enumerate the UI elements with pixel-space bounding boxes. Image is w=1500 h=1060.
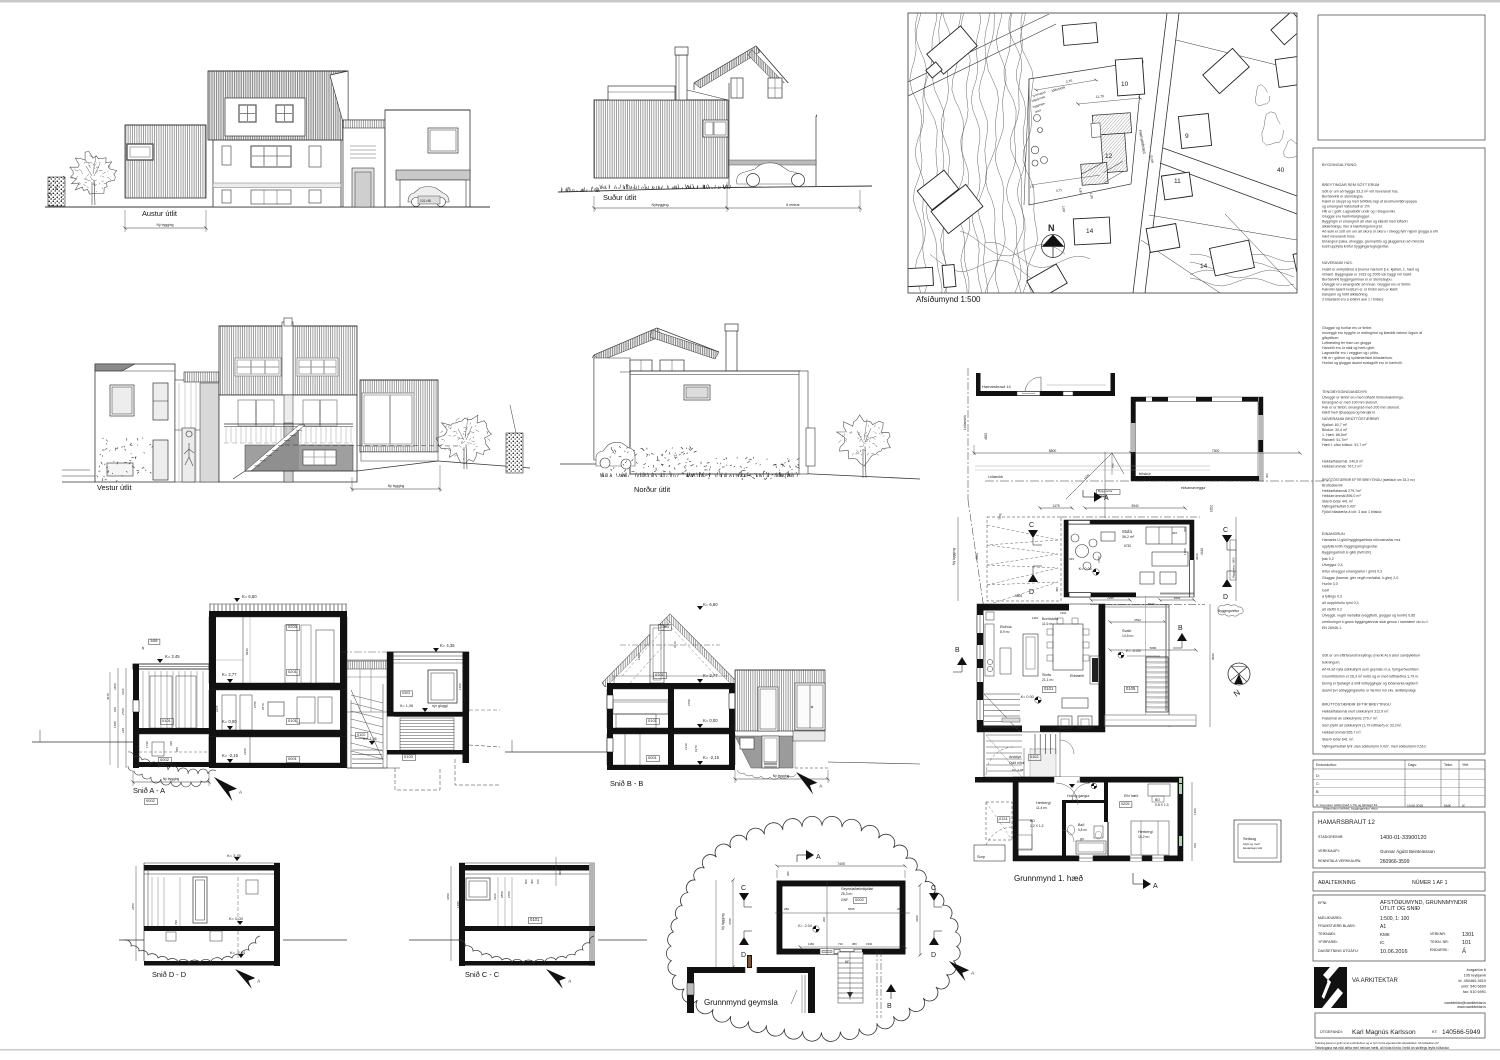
svg-text:Herbergi: Herbergi xyxy=(1138,830,1153,834)
svg-text:K= 6,60: K= 6,60 xyxy=(703,602,718,607)
svg-text:Norður útlit: Norður útlit xyxy=(634,485,670,494)
svg-text:EN 26946-1.: EN 26946-1. xyxy=(1322,626,1342,630)
svg-text:bárujárni og höfð álklæðning.: bárujárni og höfð álklæðning. xyxy=(1322,292,1368,297)
svg-text:0103: 0103 xyxy=(404,754,414,759)
svg-text:Teikningana má ekki afrita með: Teikningana má ekki afrita með neinum hæ… xyxy=(1315,1045,1450,1050)
svg-text:750: 750 xyxy=(1111,463,1115,468)
svg-text:A: A xyxy=(816,854,821,861)
svg-text:14: 14 xyxy=(1086,228,1094,235)
svg-text:Nýtingarhlutfall fyrir utan sö: Nýtingarhlutfall fyrir utan sökkulrými 0… xyxy=(1322,744,1427,749)
svg-text:3450: 3450 xyxy=(446,893,450,900)
svg-text:YFIRFARIÐ:: YFIRFARIÐ: xyxy=(1318,940,1338,944)
svg-text:Lóðamörk: Lóðamörk xyxy=(962,415,967,430)
svg-text:5943: 5943 xyxy=(1148,602,1155,606)
svg-text:A1: A1 xyxy=(1380,924,1386,930)
svg-text:Herbergi: Herbergi xyxy=(1036,801,1051,805)
svg-text:Lagnaleiðir eru í veggjum og í: Lagnaleiðir eru í veggjum og í plötu. xyxy=(1322,350,1379,355)
svg-text:340: 340 xyxy=(1172,531,1177,535)
svg-text:gifsplötum.: gifsplötum. xyxy=(1322,336,1339,340)
svg-text:BRÚTTÓSTÆRÐIR EFTIR BREYTINGU: BRÚTTÓSTÆRÐIR EFTIR BREYTINGU (stækkun u… xyxy=(1322,477,1415,482)
svg-text:0001: 0001 xyxy=(648,755,658,760)
svg-text:3 bílastæði eru á lóðinni auk: 3 bílastæði eru á lóðinni auk 1 í bílskú… xyxy=(1322,297,1384,302)
svg-text:GNF: GNF xyxy=(841,898,848,902)
svg-text:NF: NF xyxy=(845,960,849,964)
svg-text:K= 0,00: K= 0,00 xyxy=(703,718,718,723)
svg-text:Sorp: Sorp xyxy=(977,855,985,859)
svg-text:K= 0.00: K= 0.00 xyxy=(229,916,244,921)
svg-text:5940: 5940 xyxy=(1131,504,1138,508)
svg-text:15,2 m²: 15,2 m² xyxy=(1138,835,1150,839)
svg-text:Hámarks U-gildi byggingarhluta: Hámarks U-gildi byggingarhluta niðvosina… xyxy=(1322,537,1401,542)
svg-text:fax: 510 6991: fax: 510 6991 xyxy=(1463,990,1486,994)
svg-text:Anddyri: Anddyri xyxy=(1009,755,1021,759)
svg-text:3110: 3110 xyxy=(121,688,125,695)
svg-text:Geymsla/tæknikjallari: Geymsla/tæknikjallari xyxy=(841,887,873,891)
svg-text:14: 14 xyxy=(1200,263,1208,270)
svg-text:Hol og gangur: Hol og gangur xyxy=(1067,794,1090,798)
svg-text:Útveggur 0,4: Útveggur 0,4 xyxy=(1322,562,1343,567)
svg-text:A: A xyxy=(819,783,822,788)
svg-text:Heildarrúmmál 955,7 m³.: Heildarrúmmál 955,7 m³. xyxy=(1322,731,1362,735)
svg-text:A: A xyxy=(1153,883,1158,890)
svg-text:Stofa: Stofa xyxy=(1122,529,1132,534)
svg-text:1480: 1480 xyxy=(456,901,460,908)
svg-text:BREYTINGAR SEM SÓTT ERUM: BREYTINGAR SEM SÓTT ERUM xyxy=(1322,182,1379,187)
svg-text:730: 730 xyxy=(838,942,843,946)
svg-text:280: 280 xyxy=(784,907,789,911)
svg-text:C: C xyxy=(931,885,936,892)
svg-text:1180: 1180 xyxy=(808,942,814,946)
svg-text:9080: 9080 xyxy=(1211,653,1215,660)
svg-text:Snið B - B: Snið B - B xyxy=(610,779,643,788)
svg-text:3760: 3760 xyxy=(1097,556,1101,563)
svg-text:Heildarflatarmál: 240,6 m²: Heildarflatarmál: 240,6 m² xyxy=(1322,460,1364,464)
svg-text:Eldstæði: Eldstæði xyxy=(1070,673,1084,678)
svg-text:9: 9 xyxy=(1185,133,1189,140)
svg-text:2115: 2115 xyxy=(215,705,219,712)
svg-text:NÚMER 1 AF 1: NÚMER 1 AF 1 xyxy=(1412,879,1448,886)
svg-text:7405: 7405 xyxy=(837,862,845,866)
svg-text:0205: 0205 xyxy=(1121,802,1129,806)
svg-text:2780: 2780 xyxy=(507,891,511,898)
svg-text:C: C xyxy=(1223,527,1228,534)
svg-text:úrreikningur k-gross byggingar: úrreikningur k-gross byggingarinnar skai… xyxy=(1322,620,1428,624)
svg-text:B: B xyxy=(1178,625,1183,632)
svg-text:K= 3.45: K= 3.45 xyxy=(227,853,242,858)
svg-text:Heildarrúmmál 896,0 m³: Heildarrúmmál 896,0 m³ xyxy=(1322,494,1361,498)
svg-text:Burðarvirki byggingarinnar e: Burðarvirki byggingarinnar er úr steinst… xyxy=(1322,277,1393,282)
svg-text:B: B xyxy=(887,1003,892,1010)
svg-text:Húsið er einbýlishús á þremur: Húsið er einbýlishús á þremur hæðum þ.e.… xyxy=(1322,267,1419,272)
svg-text:101: 101 xyxy=(1462,940,1471,946)
svg-text:0946: 0946 xyxy=(245,648,249,655)
svg-text:K= 0.00: K= 0.00 xyxy=(1079,567,1092,571)
svg-text:K= 1.05: K= 1.05 xyxy=(1077,780,1090,784)
svg-text:40: 40 xyxy=(1277,167,1285,174)
svg-text:Sótt er um að byggja 33,3 m² v: Sótt er um að byggja 33,3 m² við núveran… xyxy=(1322,189,1399,194)
svg-text:A: A xyxy=(257,978,260,983)
svg-text:DAGSETNING ÚTGÁFU:: DAGSETNING ÚTGÁFU: xyxy=(1318,948,1359,953)
svg-text:1. Hæð: 88,5m²: 1. Hæð: 88,5m² xyxy=(1322,432,1348,437)
svg-text:K= 4,35: K= 4,35 xyxy=(440,643,455,648)
svg-text:Stofa: Stofa xyxy=(1042,673,1052,677)
svg-text:þak 0,2: þak 0,2 xyxy=(1322,557,1334,561)
svg-text:26,3 m²: 26,3 m² xyxy=(841,892,853,896)
svg-text:Hamarsbraut 14: Hamarsbraut 14 xyxy=(982,384,1011,389)
svg-text:A: A xyxy=(239,789,242,794)
svg-text:kt. 450460-3510: kt. 450460-3510 xyxy=(1459,979,1486,983)
svg-text:kosti uppfylla kröfur bygginga: kosti uppfylla kröfur byggingarreglugerð… xyxy=(1322,244,1389,249)
svg-text:bílskúr: bílskúr xyxy=(1139,471,1151,476)
svg-text:0101: 0101 xyxy=(288,718,298,723)
svg-text:Hurðar og gluggar ásamt svalag: Hurðar og gluggar ásamt svalagólfi eru ú… xyxy=(1322,360,1403,365)
svg-text:910: 910 xyxy=(1193,843,1197,848)
svg-text:3110: 3110 xyxy=(493,893,497,900)
svg-text:Bílskúr: 30,4 m²: Bílskúr: 30,4 m² xyxy=(1322,428,1348,432)
svg-text:600: 600 xyxy=(463,698,467,703)
svg-text:Gunnar Ágúst Beinteinsson: Gunnar Ágúst Beinteinsson xyxy=(1380,848,1435,854)
svg-text:Brúttóstærðir: Brúttóstærðir xyxy=(1322,483,1344,488)
svg-text:2850: 2850 xyxy=(500,891,504,898)
svg-text:AÐALTEIKNING: AÐALTEIKNING xyxy=(1318,880,1356,886)
svg-text:VERKKAUPI:: VERKKAUPI: xyxy=(1318,849,1340,853)
svg-text:5080: 5080 xyxy=(1150,646,1157,650)
svg-text:borgartún 6: borgartún 6 xyxy=(1467,968,1486,972)
svg-text:VERKNR:: VERKNR: xyxy=(1430,932,1446,936)
svg-text:6730: 6730 xyxy=(1124,544,1131,548)
svg-text:Grunnflöturinn er 26,3 m² nett: Grunnflöturinn er 26,3 m² nettó og er me… xyxy=(1322,674,1419,679)
svg-text:AFSTÖÐUMYND, GRUNNMYNDIR: AFSTÖÐUMYND, GRUNNMYNDIR xyxy=(1380,899,1467,906)
svg-text:teikningum:: teikningum: xyxy=(1322,661,1340,665)
svg-text:Setlaug: Setlaug xyxy=(1243,837,1256,841)
svg-text:K= -2,15: K= -2,15 xyxy=(222,753,239,758)
svg-text:4570: 4570 xyxy=(106,693,110,700)
svg-text:www.vaarkitektar.is: www.vaarkitektar.is xyxy=(1457,1005,1486,1009)
svg-text:200: 200 xyxy=(822,917,826,922)
svg-text:1475: 1475 xyxy=(1052,504,1059,508)
svg-text:Svalir: Svalir xyxy=(1122,629,1132,633)
svg-text:hæð núverandi húss.: hæð núverandi húss. xyxy=(1322,234,1356,239)
svg-text:K= -0.05: K= -0.05 xyxy=(1126,649,1140,653)
svg-text:300: 300 xyxy=(1265,473,1269,478)
svg-text:2570: 2570 xyxy=(261,703,265,710)
svg-text:2025: 2025 xyxy=(1209,505,1213,512)
svg-text:Grunnmynd geymsla: Grunnmynd geymsla xyxy=(704,998,778,1007)
svg-text:0101: 0101 xyxy=(1044,686,1054,691)
svg-text:C: C xyxy=(741,885,746,892)
svg-text:að óupphituðu rými 0,3: að óupphituðu rými 0,3 xyxy=(1322,600,1359,605)
svg-text:K= 2,77: K= 2,77 xyxy=(703,673,718,678)
svg-text:690: 690 xyxy=(558,870,562,875)
svg-text:BYGGINGALÝSING:: BYGGINGALÝSING: xyxy=(1322,163,1357,167)
svg-text:Austur útlit: Austur útlit xyxy=(142,209,177,218)
svg-text:0124: 0124 xyxy=(999,817,1007,821)
svg-text:læsanlegu loki: læsanlegu loki xyxy=(1243,846,1263,850)
svg-text:að úteftir 0,2: að úteftir 0,2 xyxy=(1322,606,1342,611)
svg-text:Á: Á xyxy=(1462,948,1466,955)
svg-text:Eldhús: Eldhús xyxy=(1000,625,1012,629)
svg-text:Bygg reitur 1800: Bygg reitur 1800 xyxy=(1232,557,1236,578)
svg-text:4490: 4490 xyxy=(915,915,919,922)
svg-text:klætt með tjöupappa og bárujár: klætt með tjöupappa og bárujárni. xyxy=(1322,410,1376,415)
svg-text:K= -1.05: K= -1.05 xyxy=(1012,768,1024,772)
svg-text:VA ARKITEKTAR: VA ARKITEKTAR xyxy=(1352,978,1398,984)
svg-text:0203: 0203 xyxy=(660,624,670,629)
svg-text:0201: 0201 xyxy=(655,672,665,677)
svg-text:Dags:: Dags: xyxy=(1408,763,1417,767)
svg-text:Bað: Bað xyxy=(1078,822,1084,827)
svg-text:STADGREINIR:: STADGREINIR: xyxy=(1318,835,1343,839)
svg-text:ENDURSK:: ENDURSK: xyxy=(1430,948,1449,952)
svg-text:Borðstofa: Borðstofa xyxy=(1042,616,1059,621)
svg-text:101-HB: 101-HB xyxy=(420,199,431,203)
svg-text:C:: C: xyxy=(1316,782,1320,786)
svg-text:Einangrað er með 100 mm steinu: Einangrað er með 100 mm steinull. xyxy=(1322,400,1378,405)
svg-text:Ný bygging: Ný bygging xyxy=(157,223,174,227)
svg-text:Efri hæð: Efri hæð xyxy=(1124,793,1138,798)
svg-text:12: 12 xyxy=(1105,153,1113,160)
svg-text:Heildarflatarmál með sökkulrým: Heildarflatarmál með sökkulrými 312,9 m²… xyxy=(1322,709,1389,714)
svg-text:4780: 4780 xyxy=(728,918,732,925)
svg-text:K= 0,00: K= 0,00 xyxy=(222,719,237,724)
svg-text:Yfirf:: Yfirf: xyxy=(1462,763,1469,767)
svg-text:Innveggir eru byggðir úr málmg: Innveggir eru byggðir úr málmgrind og kl… xyxy=(1322,330,1422,335)
svg-text:á fyllingu 0,3: á fyllingu 0,3 xyxy=(1322,595,1342,599)
svg-text:36,2 m²: 36,2 m² xyxy=(1122,535,1135,539)
svg-text:TENGIBYGGING/ANDDYRI: TENGIBYGGING/ANDDYRI xyxy=(1322,390,1367,394)
svg-text:Snið C - C: Snið C - C xyxy=(465,970,500,979)
svg-text:Sem þýðir að sökkulrými (1,79: Sem þýðir að sökkulrými (1,79 lofthæð) e… xyxy=(1322,723,1402,728)
svg-text:Ný bygging: Ný bygging xyxy=(952,548,956,565)
svg-text:Handrið eru úr stáli og hertu: Handrið eru úr stáli og hertu gleri. xyxy=(1322,345,1375,350)
svg-text:Flatarmál án sökkulrýmis 279,7: Flatarmál án sökkulrýmis 279,7 m². xyxy=(1322,717,1378,721)
svg-text:14,5 m²: 14,5 m² xyxy=(1122,634,1134,638)
svg-text:EFNI:: EFNI: xyxy=(1318,901,1327,905)
svg-text:625: 625 xyxy=(169,741,173,746)
svg-text:2130: 2130 xyxy=(684,743,688,750)
svg-text:400: 400 xyxy=(530,879,534,884)
svg-text:K= 2,77: K= 2,77 xyxy=(222,672,237,677)
svg-text:A: A xyxy=(971,971,974,976)
svg-text:1400: 1400 xyxy=(1183,548,1187,555)
svg-text:Grunnmynd 1. hæð: Grunnmynd 1. hæð xyxy=(1014,874,1083,883)
svg-text:Stærð lóðar 641 m².: Stærð lóðar 641 m². xyxy=(1322,737,1354,742)
svg-text:200: 200 xyxy=(1183,527,1187,532)
svg-text:Ný bygging: Ný bygging xyxy=(773,774,790,778)
svg-text:KENNITALA VERKKAUPA:: KENNITALA VERKKAUPA: xyxy=(1318,859,1361,863)
svg-text:Útveggir eru einangraðir að in: Útveggir eru einangraðir að innan. Glugg… xyxy=(1322,282,1411,287)
svg-text:0001: 0001 xyxy=(288,756,298,761)
svg-text:11,4 m²: 11,4 m² xyxy=(1036,806,1048,810)
svg-text:2150: 2150 xyxy=(243,748,247,755)
svg-text:C: C xyxy=(1029,522,1034,529)
svg-text:KMK: KMK xyxy=(1444,804,1452,808)
svg-text:4820: 4820 xyxy=(984,433,988,440)
svg-text:0201: 0201 xyxy=(288,669,298,674)
svg-text:3693: 3693 xyxy=(1174,596,1181,600)
svg-text:0002: 0002 xyxy=(855,897,865,902)
svg-text:Afsíðumynd 1:500: Afsíðumynd 1:500 xyxy=(916,295,981,304)
svg-text:1500: 1500 xyxy=(866,942,873,946)
svg-text:ÚTGEFANDI:: ÚTGEFANDI: xyxy=(1320,1029,1343,1034)
svg-text:8,9 m²: 8,9 m² xyxy=(1000,630,1010,634)
svg-text:0002: 0002 xyxy=(160,757,170,762)
svg-text:MÆLIKVARÐI:: MÆLIKVARÐI: xyxy=(1318,916,1342,920)
svg-text:48: 48 xyxy=(141,646,145,650)
svg-text:Hiti er í gólfum og syðstnæðsl: Hiti er í gólfum og syðstnæðslei bílastæ… xyxy=(1322,355,1393,360)
svg-text:0101: 0101 xyxy=(162,718,172,723)
svg-text:Lóðamörk: Lóðamörk xyxy=(988,474,1003,479)
svg-text:sími: 540 6690: sími: 540 6690 xyxy=(1461,985,1486,989)
svg-text:D: D xyxy=(931,952,936,959)
svg-text:Loftræsting fer fram um glugga: Loftræsting fer fram um glugga xyxy=(1322,341,1371,345)
svg-text:EINANGRUN: EINANGRUN xyxy=(1322,532,1345,536)
svg-text:B: B xyxy=(955,647,960,654)
svg-text:álklæðningu, litur á klæðningu: álklæðningu, litur á klæðningunni grár. xyxy=(1322,224,1383,229)
svg-text:Ný bygging: Ný bygging xyxy=(721,913,725,930)
svg-text:Hæð f. ofan bílskúr: 51,7 m²: Hæð f. ofan bílskúr: 51,7 m² xyxy=(1322,442,1367,447)
svg-text:Burðarvirki er steinsteypa.: Burðarvirki er steinsteypa. xyxy=(1322,194,1364,199)
svg-text:Vestur útlit: Vestur útlit xyxy=(97,483,132,492)
svg-text:Kjallari: 60,7 m²: Kjallari: 60,7 m² xyxy=(1322,423,1348,427)
svg-text:Suður útlit: Suður útlit xyxy=(603,193,636,202)
svg-text:A: A xyxy=(1104,495,1109,502)
svg-text:0203: 0203 xyxy=(288,624,298,629)
svg-text:nýr gluggi: nýr gluggi xyxy=(432,704,448,708)
svg-text:6605: 6605 xyxy=(848,907,855,911)
svg-text:150: 150 xyxy=(536,879,540,884)
svg-text:2790: 2790 xyxy=(687,699,691,706)
svg-text:IC: IC xyxy=(1380,940,1385,945)
svg-text:7300: 7300 xyxy=(1212,449,1220,453)
svg-text:Þakvirki ásamt kvistum er úr t: Þakvirki ásamt kvistum er úr timbri sem … xyxy=(1322,288,1397,292)
svg-text:0002: 0002 xyxy=(146,798,156,803)
svg-text:1970: 1970 xyxy=(694,745,698,752)
svg-text:1300: 1300 xyxy=(1193,808,1197,815)
svg-text:255: 255 xyxy=(175,747,179,752)
svg-text:K= -1,06: K= -1,06 xyxy=(363,737,377,741)
svg-text:248: 248 xyxy=(121,728,125,733)
svg-text:10.06.2016: 10.06.2016 xyxy=(1380,949,1408,955)
svg-text:Teikning þessi er gefin út af: Teikning þessi er gefin út af undirrituð… xyxy=(1315,1040,1439,1045)
svg-text:1790: 1790 xyxy=(145,741,149,748)
svg-text:1:500, 1: 100: 1:500, 1: 100 xyxy=(1380,916,1409,922)
svg-text:Opið niður: Opið niður xyxy=(1009,760,1026,765)
svg-text:Fjöldi bílastæða á lóð: 3 auk: Fjöldi bílastæða á lóð: 3 auk 1 bílskúr. xyxy=(1322,509,1382,514)
svg-text:Nýbygging: Nýbygging xyxy=(652,203,669,207)
svg-text:Nýtingarhlutfall 0,437: Nýtingarhlutfall 0,437 xyxy=(1322,505,1356,509)
svg-text:1400-01-33900120: 1400-01-33900120 xyxy=(1380,835,1427,841)
svg-text:Stærð lóðar 441 m²: Stærð lóðar 441 m² xyxy=(1322,498,1354,503)
svg-text:ÚTLIT OG SNIÐ: ÚTLIT OG SNIÐ xyxy=(1380,905,1420,912)
svg-text:Rishæð: 51,7m²: Rishæð: 51,7m² xyxy=(1322,437,1348,442)
svg-text:D: D xyxy=(1223,594,1228,601)
svg-text:7301: 7301 xyxy=(1060,611,1067,615)
svg-text:K= 1,06: K= 1,06 xyxy=(400,704,413,708)
svg-text:Hiti er í gólfi. Lagnaleiðir u: Hiti er í gólfi. Lagnaleiðir undir og í … xyxy=(1322,209,1396,214)
svg-text:11,6 m²: 11,6 m² xyxy=(1042,622,1054,626)
svg-text:2700: 2700 xyxy=(121,708,125,715)
svg-text:2266: 2266 xyxy=(1107,596,1114,600)
svg-text:NÚVERANDI BRÚTTÓSTÆRÐIR: NÚVERANDI BRÚTTÓSTÆRÐIR xyxy=(1322,416,1379,421)
svg-text:796: 796 xyxy=(174,920,178,925)
svg-text:910: 910 xyxy=(113,707,117,712)
svg-text:D: D xyxy=(1029,589,1034,596)
svg-text:Gólf: Gólf xyxy=(1322,588,1329,592)
svg-text:K= -2.04: K= -2.04 xyxy=(798,924,812,928)
svg-text:Ný bygging: Ný bygging xyxy=(388,484,405,488)
svg-text:K= 3.45: K= 3.45 xyxy=(165,654,180,659)
svg-text:8800: 8800 xyxy=(1049,449,1057,453)
svg-text:0105: 0105 xyxy=(1126,686,1136,691)
svg-text:Bygg reitur: Bygg reitur xyxy=(1098,489,1113,493)
svg-text:0101: 0101 xyxy=(648,718,658,723)
svg-text:K= -2,15: K= -2,15 xyxy=(703,755,720,760)
svg-text:K= 0.00: K= 0.00 xyxy=(1021,695,1034,699)
svg-text:1880: 1880 xyxy=(637,653,641,660)
svg-text:HAMARSBRAUT 12: HAMARSBRAUT 12 xyxy=(1318,819,1375,826)
svg-text:4920: 4920 xyxy=(975,553,979,560)
svg-text:K= 6,60: K= 6,60 xyxy=(242,594,257,599)
svg-text:eldvarnarveggur: eldvarnarveggur xyxy=(1181,486,1206,490)
svg-text:B:: B: xyxy=(1316,790,1319,794)
svg-text:6,9 m²: 6,9 m² xyxy=(1072,799,1082,803)
svg-text:280: 280 xyxy=(897,907,902,911)
svg-text:Hurðir 3,0: Hurðir 3,0 xyxy=(1322,581,1338,586)
svg-text:lóðamörkum leiðrétt, byggingar: lóðamörkum leiðrétt, byggingareitur rétt… xyxy=(1323,806,1378,811)
svg-text:0,8 X 1,3: 0,8 X 1,3 xyxy=(1155,803,1169,807)
svg-text:21,1 m²: 21,1 m² xyxy=(1042,678,1054,682)
svg-text:380: 380 xyxy=(852,942,857,946)
svg-text:0303: 0303 xyxy=(402,691,410,695)
svg-text:3450: 3450 xyxy=(113,683,117,690)
svg-text:Karl Magnús Karlsson: Karl Magnús Karlsson xyxy=(1352,1029,1416,1036)
svg-text:3450: 3450 xyxy=(131,903,135,910)
svg-text:3020: 3020 xyxy=(1195,553,1199,560)
svg-text:léttur útveggur einangraður í: léttur útveggur einangraður í grind 0,3 xyxy=(1322,569,1382,574)
svg-text:11: 11 xyxy=(1174,178,1181,185)
svg-text:Einangrun þaka, útveggja, grun: Einangrun þaka, útveggja, grunnplötu og … xyxy=(1322,239,1424,244)
svg-text:TEIKN. NR:: TEIKN. NR: xyxy=(1430,940,1449,944)
svg-text:D:: D: xyxy=(1316,774,1320,778)
svg-text:Heildarrúmmál: 767,2 m³: Heildarrúmmál: 767,2 m³ xyxy=(1322,465,1362,469)
svg-text:4440: 4440 xyxy=(1200,548,1204,555)
svg-text:ásamt því aðbyggingareitur er: ásamt því aðbyggingareitur er færður inn… xyxy=(1322,688,1416,693)
svg-text:Þak er úr timbri, einangrað me: Þak er úr timbri, einangrað með 200 mm s… xyxy=(1322,405,1400,410)
svg-text:3616: 3616 xyxy=(673,641,677,648)
svg-text:Teikn:: Teikn: xyxy=(1444,763,1453,767)
svg-text:BRÚTTÓSTÆRÐIR EFTIR BREYTINGU: BRÚTTÓSTÆRÐIR EFTIR BREYTINGU xyxy=(1322,702,1391,707)
svg-text:6 metrar: 6 metrar xyxy=(786,203,800,207)
svg-text:Byggingin er einangruð að utan: Byggingin er einangruð að utan og klædd … xyxy=(1322,219,1408,224)
svg-text:1488: 1488 xyxy=(113,721,117,728)
svg-text:3455: 3455 xyxy=(150,639,158,643)
svg-text:260966-3599: 260966-3599 xyxy=(1380,859,1410,865)
svg-text:Byggingareitur: Byggingareitur xyxy=(1218,609,1240,613)
svg-text:349: 349 xyxy=(1069,557,1074,561)
svg-text:Að auki er sótt um um að skorá: Að auki er sótt um um að skorá úr skeru … xyxy=(1322,229,1438,234)
svg-text:FRUMSTÆRÐ BLAÐS:: FRUMSTÆRÐ BLAÐS: xyxy=(1318,924,1356,928)
svg-text:D: D xyxy=(741,952,746,959)
svg-text:gn.: gn. xyxy=(1080,837,1085,841)
svg-text:280: 280 xyxy=(786,871,790,876)
svg-text:Gluggar (karmar, gler vegið me: Gluggar (karmar, gler vegið meðaltal, k-… xyxy=(1322,575,1398,580)
svg-text:BO: BO xyxy=(1155,798,1160,802)
svg-text:Sótt er um eftirfarandi breyti: Sótt er um eftirfarandi breytingu (merkt… xyxy=(1322,653,1420,658)
svg-text:3532: 3532 xyxy=(1134,618,1141,622)
svg-text:A: A xyxy=(568,978,571,983)
svg-text:900: 900 xyxy=(524,879,528,884)
